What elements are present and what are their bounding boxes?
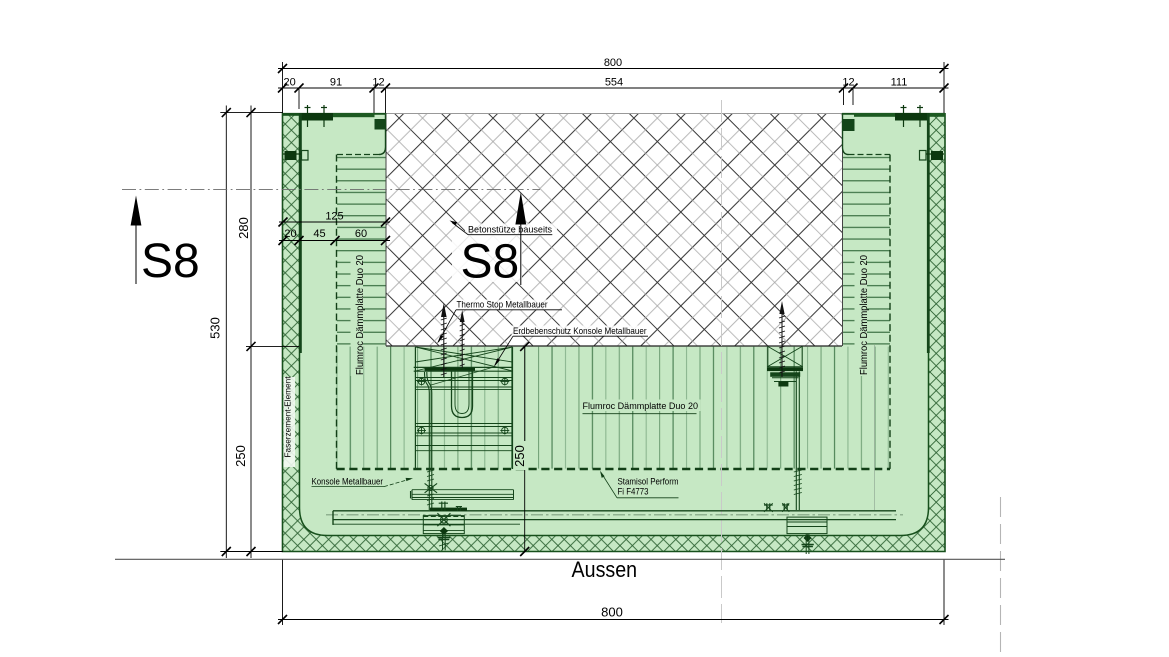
svg-text:20: 20 [284, 228, 296, 240]
svg-text:Konsole Metallbauer: Konsole Metallbauer [312, 476, 384, 487]
svg-text:Aussen: Aussen [572, 557, 638, 582]
svg-text:250: 250 [512, 445, 527, 467]
svg-text:800: 800 [601, 605, 623, 620]
svg-text:91: 91 [330, 77, 342, 89]
svg-text:Thermo Stop Metallbauer: Thermo Stop Metallbauer [457, 299, 548, 310]
svg-text:12: 12 [372, 77, 384, 89]
svg-text:280: 280 [236, 217, 251, 239]
svg-text:Fi F4773: Fi F4773 [618, 486, 649, 497]
svg-text:Erdbebenschutz Konsole Metallb: Erdbebenschutz Konsole Metallbauer [513, 326, 647, 336]
svg-text:111: 111 [891, 77, 908, 89]
svg-text:12: 12 [842, 77, 854, 89]
svg-text:Flumroc Dämmplatte Duo 20: Flumroc Dämmplatte Duo 20 [859, 255, 870, 375]
svg-text:45: 45 [313, 228, 325, 240]
svg-text:250: 250 [233, 445, 248, 467]
svg-text:554: 554 [605, 77, 623, 89]
svg-text:Betonstütze bauseits: Betonstütze bauseits [468, 225, 552, 236]
svg-text:800: 800 [604, 57, 622, 69]
svg-text:60: 60 [355, 228, 367, 240]
svg-text:125: 125 [325, 211, 343, 223]
svg-text:Faserzement-Element: Faserzement-Element [283, 376, 293, 458]
svg-text:S8: S8 [461, 236, 520, 289]
svg-text:20: 20 [284, 77, 296, 89]
svg-text:530: 530 [208, 317, 223, 339]
svg-text:S8: S8 [141, 235, 200, 288]
svg-text:Flumroc Dämmplatte Duo 20: Flumroc Dämmplatte Duo 20 [355, 255, 366, 375]
svg-text:Flumroc Dämmplatte Duo 20: Flumroc Dämmplatte Duo 20 [583, 401, 699, 412]
